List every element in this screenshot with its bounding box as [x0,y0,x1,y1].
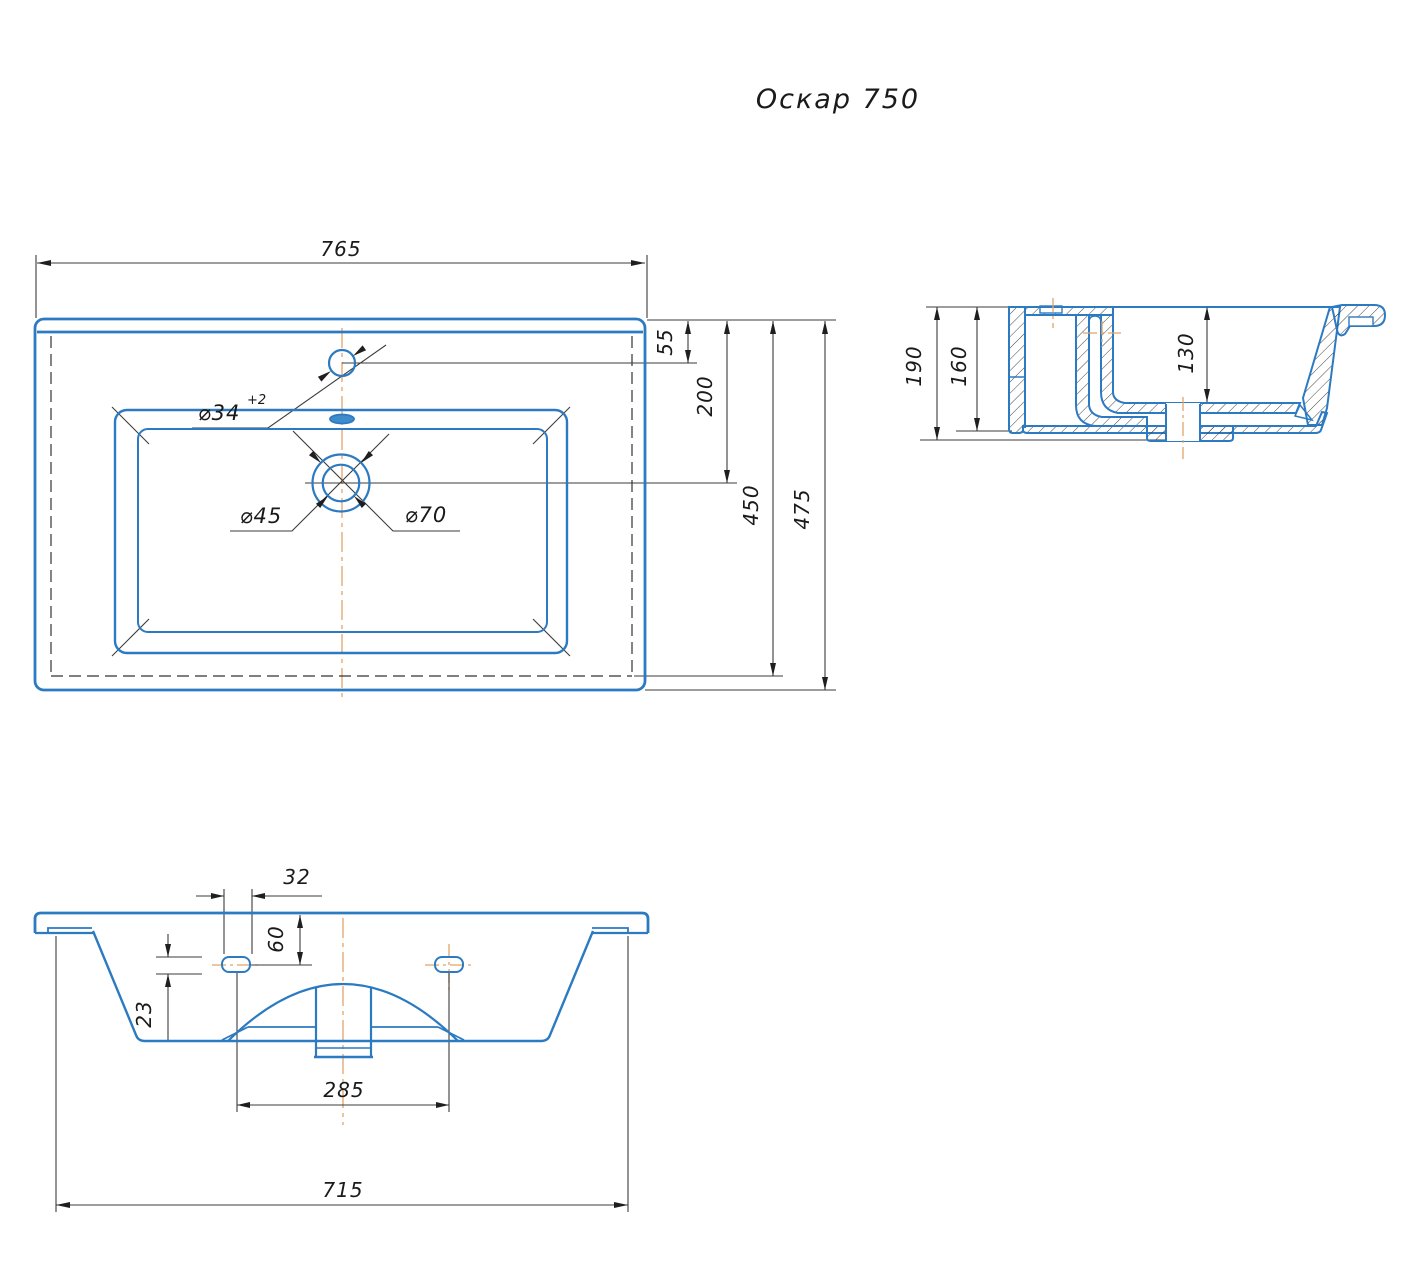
label-drain-inner-dia: ⌀45 [240,504,282,528]
overflow-slot-cap [1089,316,1101,322]
overflow-slot [330,415,354,424]
basin-floor [1101,315,1300,413]
flange-notch [1349,317,1373,326]
label-drain-outer-dia: ⌀70 [405,503,447,527]
page-title: Оскар 750 [756,84,920,115]
dim-slot-width: 32 [283,865,310,889]
front-extension-lines [56,889,628,1212]
dim-slot-spacing: 285 [323,1078,364,1102]
back-wall [1009,307,1025,433]
front-contours [35,913,648,1057]
drawing-sheet: Оскар 750 [0,0,1417,1280]
top-flange [35,913,648,933]
front-wall [1303,307,1340,425]
dim-bowl-depth: 130 [1174,332,1198,373]
sink-outline [35,319,645,690]
top-bridge [1025,307,1113,315]
dim-inner-depth: 450 [739,484,763,525]
sink-contours [35,319,645,690]
dim-slot-height: 23 [132,1000,156,1027]
label-faucet-hole-dia: ⌀34 [198,401,240,425]
label-faucet-hole-tolerance: +2 [247,393,266,408]
top-view: 765 55 200 450 475 ⌀34 +2 ⌀45 ⌀70 [35,237,836,702]
dim-top-to-slot: 60 [264,925,288,952]
technical-drawing: Оскар 750 [0,0,1417,1280]
dim-edge-to-drain: 200 [693,375,717,416]
dim-edge-to-faucet: 55 [653,328,677,355]
dim-overall-depth: 475 [790,488,814,529]
dim-overall-height: 190 [902,345,926,386]
dim-overall-width: 765 [320,237,361,261]
section-view: 190 160 130 [902,298,1385,459]
front-view: 32 60 23 285 715 [35,865,648,1212]
dim-mounting-width: 715 [322,1178,363,1202]
dim-body-height: 160 [947,345,971,386]
basin-outer-rim [115,410,567,653]
